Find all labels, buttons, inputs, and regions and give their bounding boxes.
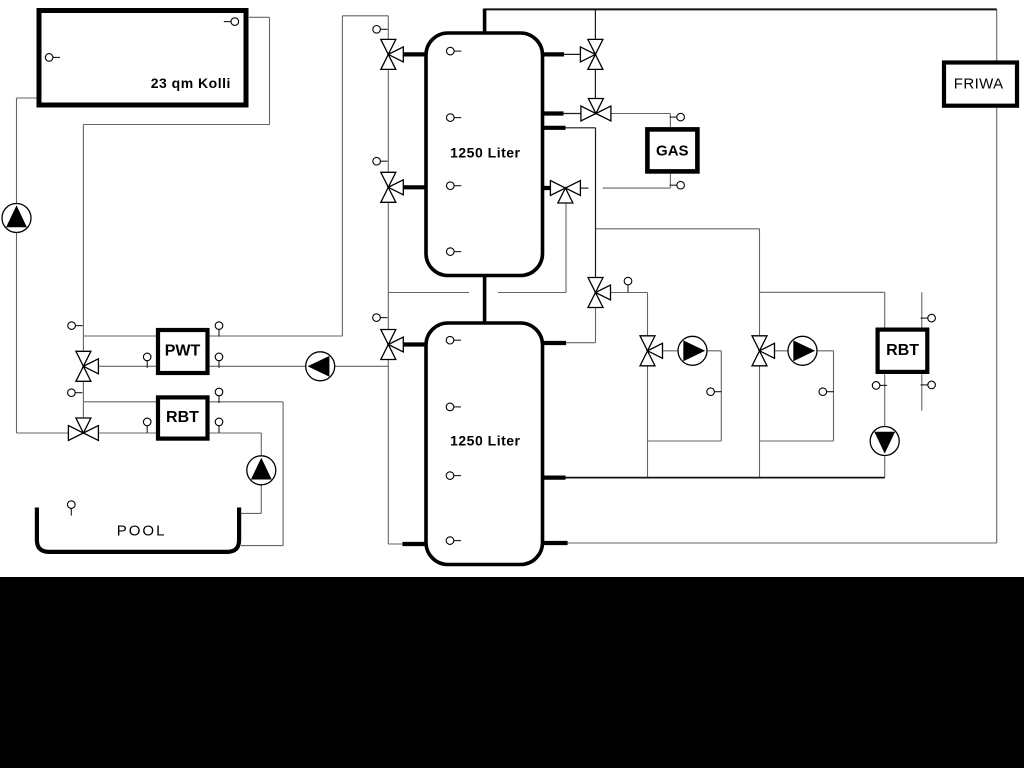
svg-text:1250 Liter: 1250 Liter <box>450 433 520 449</box>
svg-text:FRIWA: FRIWA <box>954 76 1004 93</box>
svg-text:RBT: RBT <box>886 342 919 359</box>
svg-text:1250 Liter: 1250 Liter <box>450 145 520 161</box>
svg-text:POOL: POOL <box>117 523 167 540</box>
svg-text:23 qm Kolli: 23 qm Kolli <box>151 75 231 91</box>
svg-text:GAS: GAS <box>656 143 689 160</box>
svg-text:RBT: RBT <box>166 409 199 426</box>
svg-text:PWT: PWT <box>165 343 201 360</box>
